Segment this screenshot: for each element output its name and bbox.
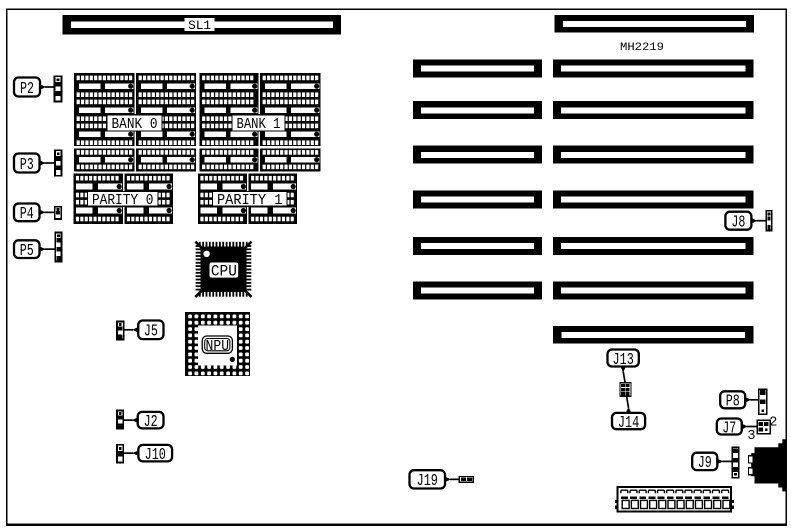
svg-text:P4: P4 [20,204,34,223]
svg-text:BANK 0: BANK 0 [112,117,158,133]
svg-text:BANK 1: BANK 1 [237,117,281,133]
svg-text:3: 3 [747,429,755,444]
svg-text:J13: J13 [613,350,634,369]
svg-text:J8: J8 [731,213,745,232]
svg-text:P2: P2 [20,79,34,98]
svg-text:J2: J2 [144,412,158,431]
svg-text:J19: J19 [417,471,438,490]
svg-text:J10: J10 [145,445,166,464]
svg-text:P3: P3 [20,155,34,174]
svg-text:PARITY 1: PARITY 1 [217,193,283,209]
svg-text:P8: P8 [726,392,740,411]
svg-text:J9: J9 [698,453,712,472]
svg-text:2: 2 [769,416,777,431]
svg-text:MH2219: MH2219 [620,42,664,54]
svg-text:PARITY 0: PARITY 0 [92,193,154,209]
svg-text:J5: J5 [144,322,158,341]
svg-text:CPU: CPU [211,262,237,280]
svg-text:P5: P5 [20,241,34,260]
svg-text:J7: J7 [722,418,736,437]
svg-text:J14: J14 [618,413,639,432]
svg-text:SL1: SL1 [188,18,211,33]
svg-text:NPU: NPU [206,339,230,355]
